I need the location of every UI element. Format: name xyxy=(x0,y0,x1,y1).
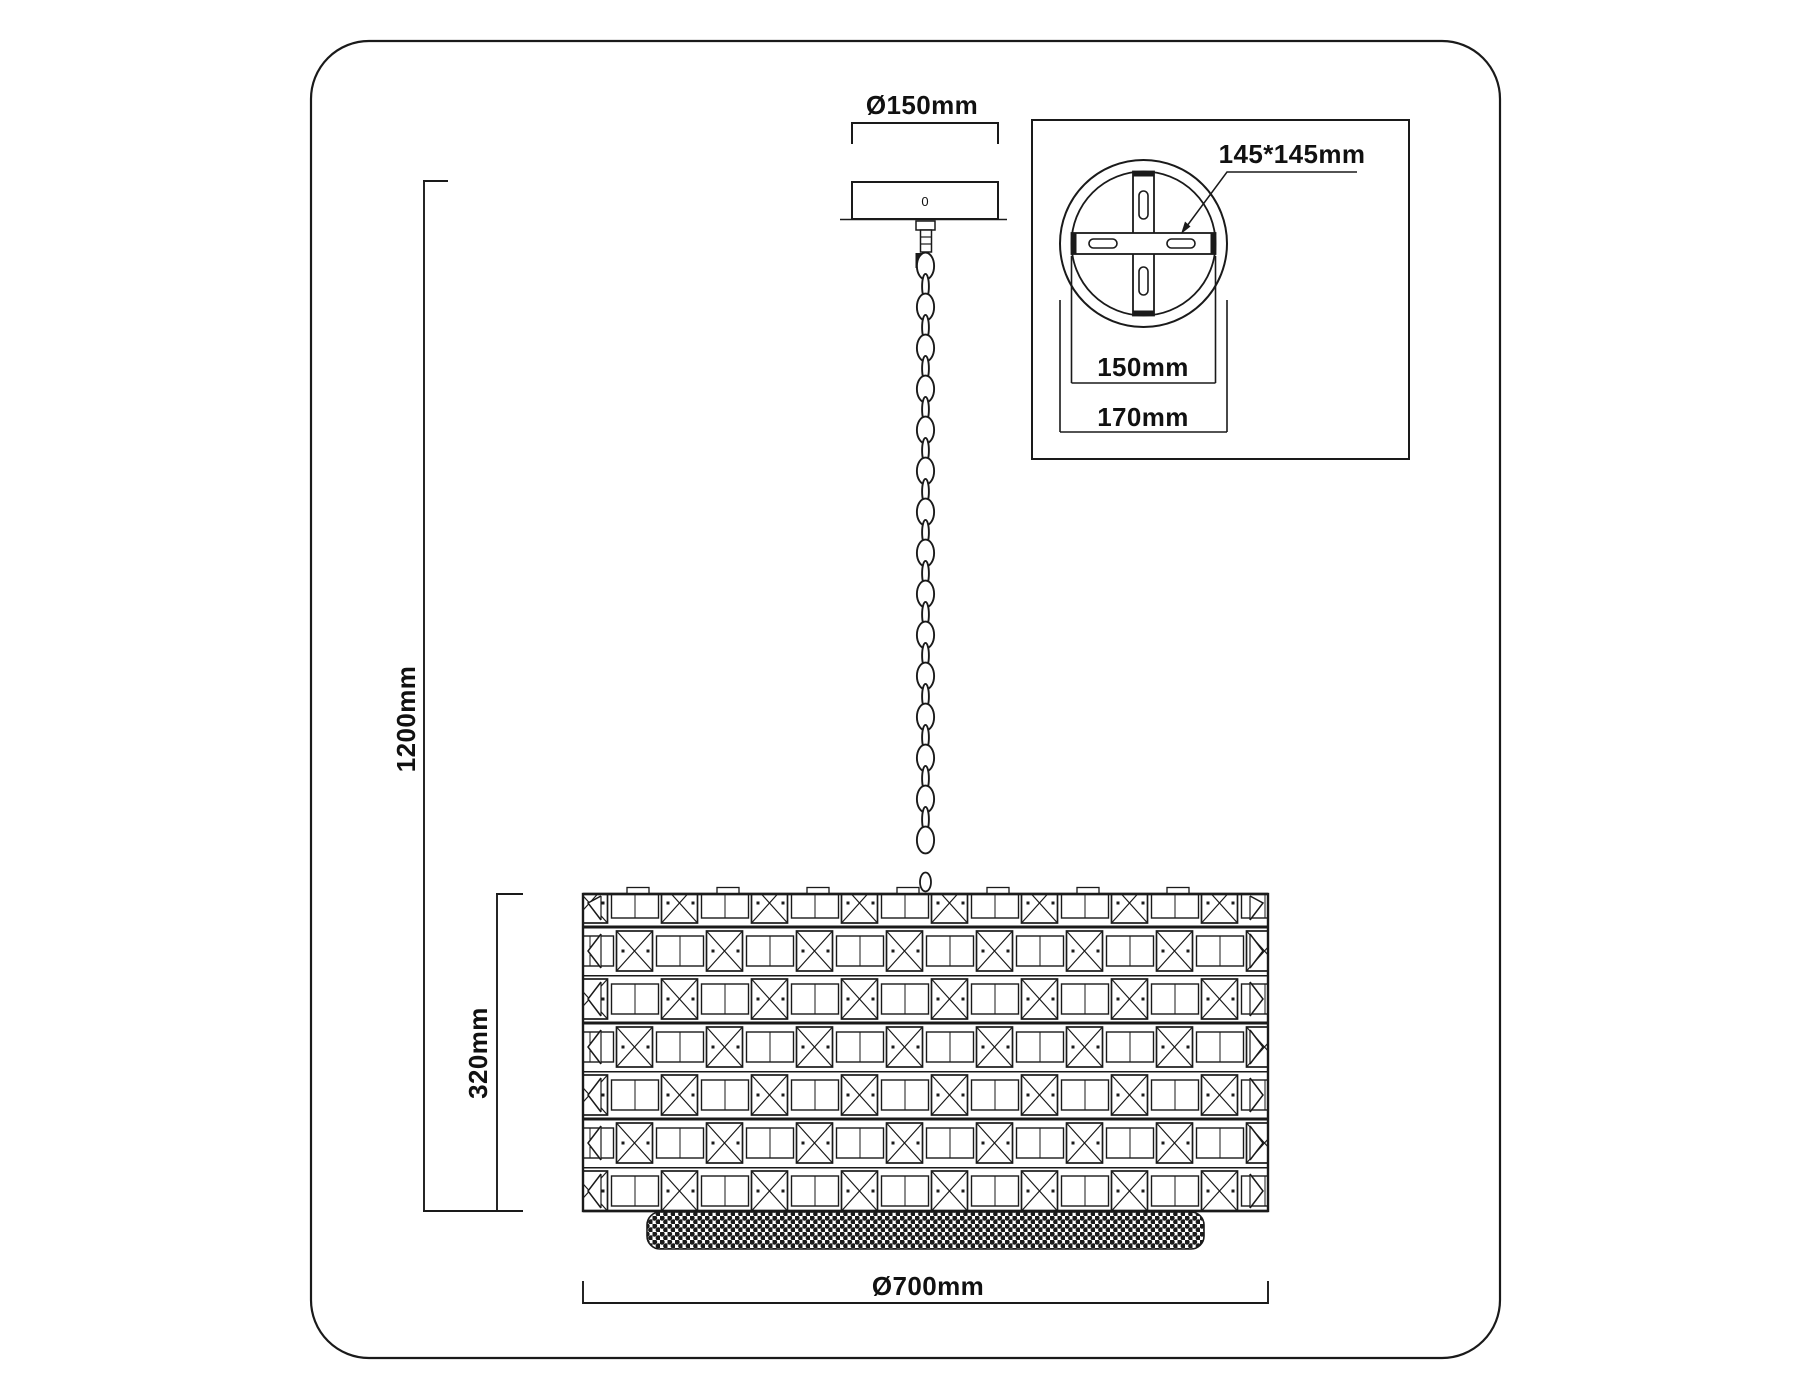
hanging-chain xyxy=(917,253,934,892)
outer-diameter-label: 170mm xyxy=(1063,403,1223,431)
shade-height-label: 320mm xyxy=(464,983,492,1123)
shade-diameter-label: Ø700mm xyxy=(848,1272,1008,1300)
canopy-mark-label: 0 xyxy=(915,188,935,216)
chandelier-technical-drawing xyxy=(0,0,1800,1400)
canopy-diameter-label: Ø150mm xyxy=(842,91,1002,119)
drum-body xyxy=(583,894,1268,1211)
crystal-drum-shade xyxy=(583,888,1268,1250)
diagram-page: Ø150mm 0 1200mm 320mm Ø700mm 145*145mm 1… xyxy=(0,0,1800,1400)
beaded-fringe xyxy=(647,1212,1204,1249)
canopy-diameter-dim-line xyxy=(852,123,998,144)
inner-diameter-label: 150mm xyxy=(1063,353,1223,381)
overall-height-label: 1200mm xyxy=(392,649,420,789)
bracket-size-label: 145*145mm xyxy=(1212,140,1372,168)
